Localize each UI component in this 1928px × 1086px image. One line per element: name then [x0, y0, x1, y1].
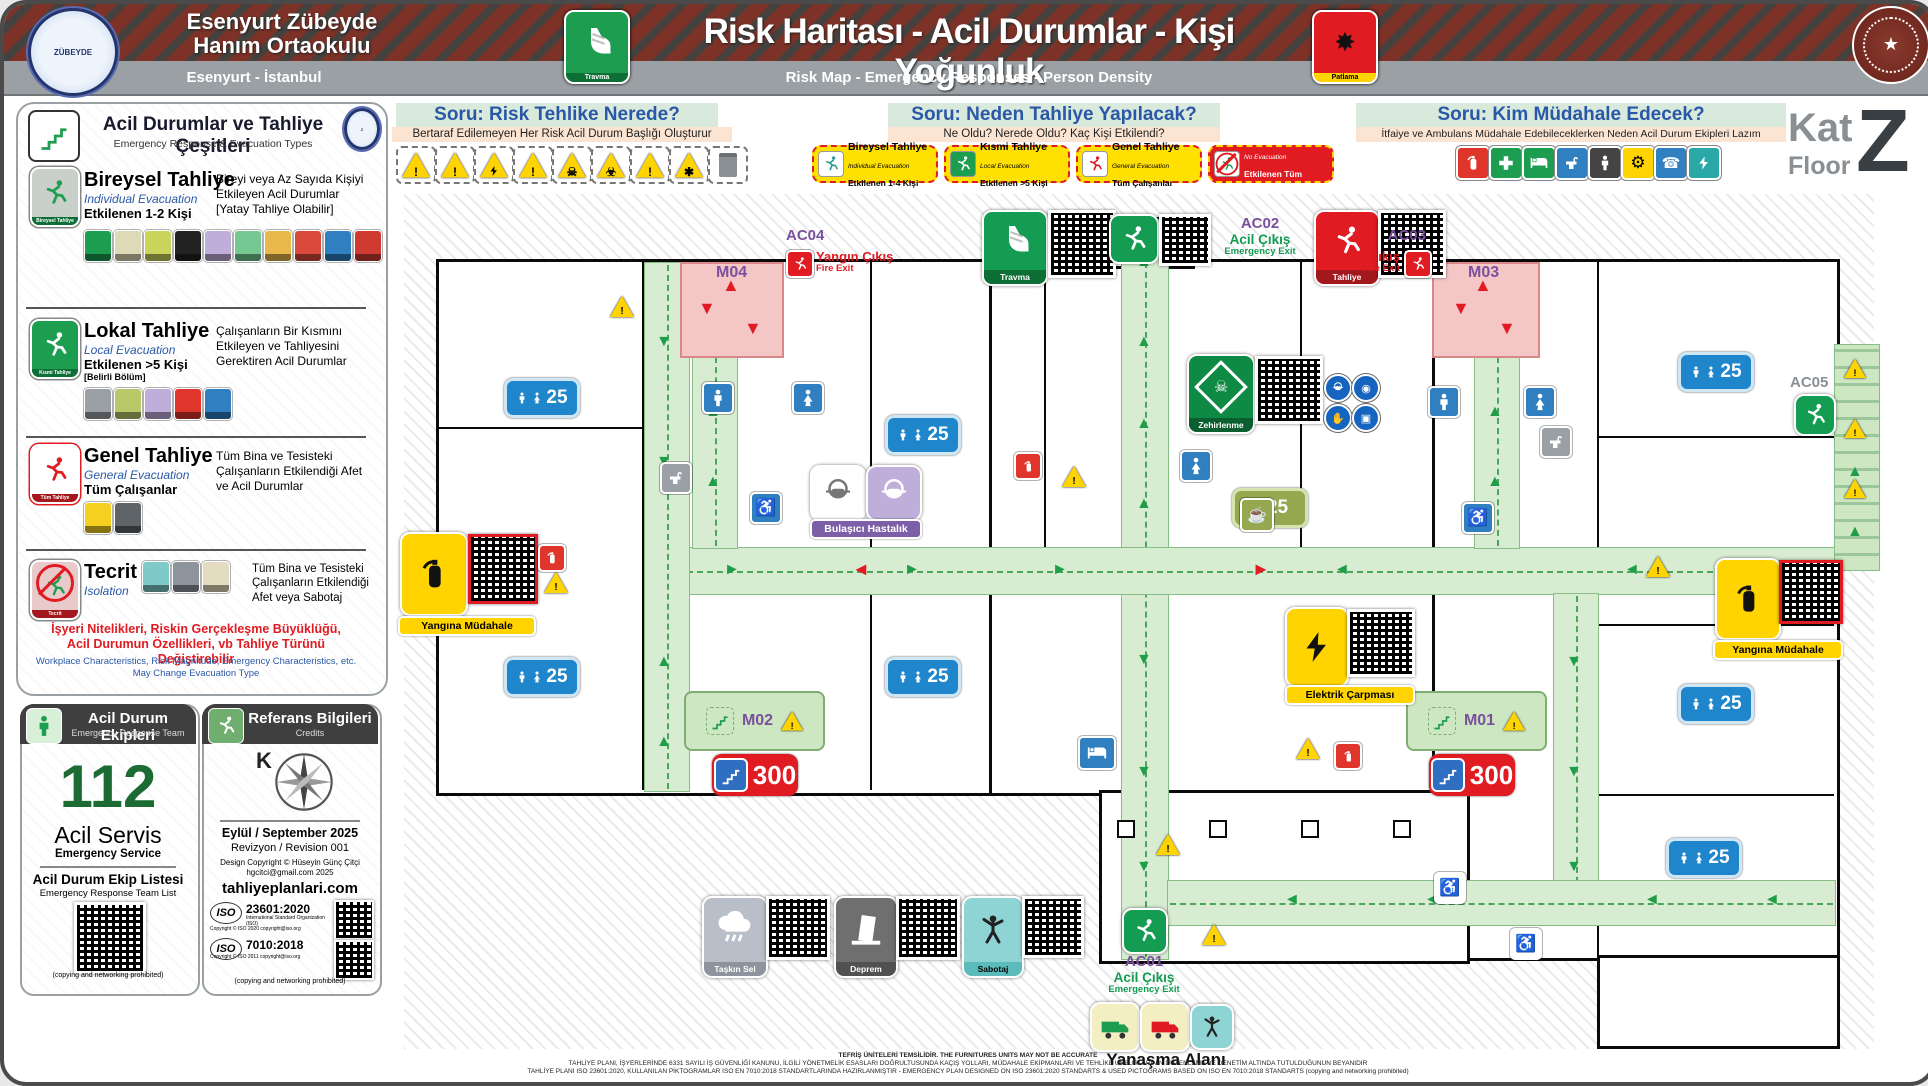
infectious-disease-caption: Bulaşıcı Hastalık [810, 519, 922, 539]
fire-brigade-icon [1456, 146, 1490, 180]
evac-arrow: ◄ [1644, 892, 1660, 908]
stair-label-m01: M01 [1464, 712, 1495, 730]
corridor-right-vertical [1553, 593, 1599, 926]
interior-wall [1044, 262, 1046, 547]
earthquake-qr-code [896, 896, 960, 960]
trauma-qr-code [1048, 210, 1116, 278]
trauma-header-icon: Travma [564, 10, 630, 84]
fire-response-caption: Yangına Müdahale [398, 616, 536, 636]
density-value: 25 [1720, 361, 1741, 383]
fire-arrow: ▼ [1452, 299, 1470, 317]
badge-sub: Local Evacuation [980, 163, 1030, 170]
fire-extinguisher-icon [402, 534, 466, 614]
wheelchair-icon: ♿ [750, 492, 782, 524]
flood-cloud-icon [704, 898, 766, 962]
note-en-line1: Workplace Characteristics, Risk Magnitud… [28, 656, 364, 668]
risk-map-sheet: Esenyurt Zübeyde Hanım Ortaokulu Esenyur… [0, 0, 1928, 1086]
stairs-capacity-icon [714, 758, 748, 792]
interior-wall [436, 427, 644, 429]
evac-arrow: ► [904, 562, 920, 578]
note-en-line2: May Change Evacuation Type [28, 668, 364, 680]
credits-subtitle: Credits [244, 728, 376, 738]
fire-arrow: ▼ [698, 299, 716, 317]
exit-name-tr: Yangın Çıkış [816, 250, 906, 264]
badge-title: Kısmi Tahliye [980, 141, 1047, 153]
biohazard-icon: ☣ [591, 146, 631, 184]
electric-shock-caption: Elektrik Çarpması [1285, 685, 1415, 705]
bandaged-foot-icon [984, 212, 1046, 270]
section4-desc: Tüm Bina ve Tesisteki Çalışanların Etkil… [252, 562, 374, 605]
page-subtitle: Risk Map - Emergency Responses - Person … [639, 69, 1299, 86]
badge-kismi-tahliye: Kısmi Tahliye Local Evacuation Etkilenen… [944, 145, 1070, 183]
density-badge: 25 [885, 415, 961, 455]
team-copy-note: (copying and networking prohibited) [20, 972, 196, 979]
section-divider [26, 307, 366, 309]
stair-warning-icon: ! [1503, 712, 1525, 731]
density-value: 25 [927, 424, 948, 446]
poisoning-sign: ☠ Zehirlenme [1187, 354, 1255, 434]
individual-evacuation-sign: Bireysel Tahliye [30, 167, 80, 227]
evac-arrow: ▲ [656, 734, 672, 750]
credits-design: Design Copyright © Hüseyin Günç Çitçi [202, 858, 378, 867]
general-evac-icon [1082, 151, 1108, 177]
fire-arrow: ▲ [722, 276, 740, 294]
note-tr-line1: İşyeri Nitelikleri, Riskin Gerçekleşme B… [28, 622, 364, 637]
evac-arrow: ▲ [1487, 474, 1503, 490]
school-name: Esenyurt Zübeyde Hanım Ortaokulu [122, 10, 442, 58]
coffee-break-icon: ☕ [1240, 498, 1274, 532]
iso2-copyright: Copyright © ISO 2011 copyright@iso.org [210, 954, 330, 960]
sidebar-school-logo: Z [344, 108, 380, 150]
travma-icon [84, 230, 112, 262]
slip-hazard-icon: ! [435, 146, 475, 184]
hayvan-isirigi-icon [114, 230, 142, 262]
infectious-disease-icon-1 [810, 465, 866, 521]
credits-copy-note: (copying and networking prohibited) [202, 978, 378, 985]
evacuation-plan-icon [28, 110, 80, 162]
density-value: 25 [1720, 693, 1741, 715]
ambulance-icon [1090, 1002, 1140, 1052]
alarm-gear-icon: ⚙ [1621, 146, 1655, 180]
sidebar-title: Acil Durumlar ve Tahliye Çeşitleri [84, 114, 342, 158]
wc-women-icon [792, 382, 824, 414]
section2-icon-strip [84, 388, 232, 420]
density-badge: 25 [885, 657, 961, 697]
running-man-icon [1796, 396, 1834, 434]
asansor-icon [204, 388, 232, 420]
evac-arrow: ◄ [1764, 892, 1780, 908]
warning-triangle-icon: ! [1844, 419, 1866, 438]
credits-date: Eylül / September 2025 [202, 826, 378, 840]
stairwell-m02: M02 ! [684, 691, 825, 751]
section3-desc: Tüm Bina ve Tesisteki Çalışanların Etkil… [216, 449, 374, 494]
badge-bireysel-tahliye: Bireysel Tahliye Individual Evacuation E… [812, 145, 938, 183]
stairs-down-icon [706, 707, 734, 735]
wheelchair-icon: ♿ [1434, 872, 1466, 904]
school-location: Esenyurt - İstanbul [104, 69, 404, 86]
exit-name-en: Emergency Exit [1208, 247, 1312, 257]
badge-sub: Individual Evacuation [848, 163, 909, 170]
building-center-wing [989, 259, 1435, 796]
interior-wall [870, 593, 872, 790]
ppe-mask-icon [1324, 374, 1352, 402]
iso1-number: 23601:2020 [246, 902, 310, 916]
badge-scope: Etkilenen Tüm Kişiler [1244, 169, 1302, 197]
poisoning-qr-code [1255, 356, 1323, 424]
bina-cokmesi-icon [114, 502, 142, 534]
ppe-apron-icon: ▣ [1352, 404, 1380, 432]
fire-exit-icon [786, 250, 814, 278]
emergency-service-en: Emergency Service [20, 848, 196, 860]
evac-arrow: ◄ [1284, 892, 1300, 908]
warning-triangle-icon: ! [1844, 359, 1866, 378]
iso1-qr-code [334, 900, 374, 940]
badge-genel-tahliye: Genel Tahliye General Evacuation Tüm Çal… [1076, 145, 1202, 183]
evac-arrow: ▲ [1847, 524, 1863, 540]
wheelchair-icon: ♿ [1462, 502, 1494, 534]
fire-exit-icon [1404, 250, 1432, 278]
question3-subtitle: İtfaiye ve Ambulans Müdahale Edebilecekl… [1356, 127, 1786, 142]
local-evacuation-sign: Kısmi Tahliye [30, 319, 80, 379]
chemical-hazard-icon: ✱ [669, 146, 709, 184]
trauma-caption: Travma [984, 270, 1046, 284]
evac-arrow: ▼ [1566, 859, 1582, 875]
evac-arrow: ◄ [1334, 562, 1350, 578]
fire-extinguisher-icon [1717, 560, 1779, 638]
footer-line1: TEFRİŞ ÜNİTELERİ TEMSİLİDİR. THE FURNITU… [268, 1052, 1668, 1059]
section3-scope: Tüm Çalışanlar [84, 482, 177, 497]
fire-arrow: ► [1252, 560, 1270, 578]
general-hazard-icon: ! [396, 146, 436, 184]
siddet-icon [142, 561, 170, 593]
section2-sub: Local Evacuation [84, 343, 175, 357]
sabotage-sign: Sabotaj [962, 896, 1024, 978]
emergency-number: 112 [20, 752, 196, 821]
fire-arrow: ◄ [852, 560, 870, 578]
evac-arrow: ▲ [1136, 416, 1152, 432]
exit-label-ac02: AC02 Acil Çıkış Emergency Exit [1208, 216, 1312, 258]
sabotage-qr-code [1022, 896, 1084, 958]
general-evacuation-sign: Tüm Tahliye [30, 444, 80, 504]
fire-response-sign [1715, 558, 1781, 640]
zehirlenme-icon [144, 230, 172, 262]
floor-label-floor: Floor [1788, 152, 1851, 181]
section1-desc: Bireyi veya Az Sayıda Kişiyi Etkileyen A… [216, 172, 374, 217]
capacity-value: 300 [753, 760, 796, 791]
exit-sign-ac01 [1122, 908, 1168, 954]
exit-id: AC02 [1208, 216, 1312, 233]
fire-truck-icon [1140, 1002, 1190, 1052]
school-name-line1: Esenyurt Zübeyde [122, 10, 442, 34]
section4-title: Tecrit [84, 561, 137, 584]
sign-caption: Kısmi Tahliye [32, 369, 78, 377]
fire-response-qr-code [1779, 560, 1843, 624]
credits-email: hgcitci@gmail.com 2025 [202, 868, 378, 877]
sel-baskini-icon [84, 388, 112, 420]
extinguisher-point-icon [1334, 742, 1362, 770]
exit-name-en: Fire Exit [1312, 264, 1400, 274]
iso-logo: ISO [210, 902, 242, 924]
compass-rose [272, 750, 336, 814]
team-list-en: Emergency Response Team List [20, 888, 196, 899]
bandaged-foot-icon [566, 12, 628, 73]
isolation-sign: Tecrit [30, 560, 80, 620]
warning-triangle-icon: ! [1296, 738, 1320, 759]
infectious-disease-icon-2 [866, 465, 922, 521]
evac-arrow: ▼ [1136, 764, 1152, 780]
explosion-icon: ✸ [1314, 12, 1376, 73]
exit-sign-ac05 [1794, 394, 1836, 436]
density-value: 25 [546, 387, 567, 409]
building-bottom-right-annex [1597, 955, 1840, 1049]
kanama-icon [264, 230, 292, 262]
stairwell-m01: M01 ! [1406, 691, 1547, 751]
question1-title: Soru: Risk Tehlike Nerede? [396, 103, 718, 127]
evac-arrow: ► [724, 562, 740, 578]
corridor-bottom-horizontal [1167, 880, 1836, 926]
ppe-gloves-icon: ✋ [1324, 404, 1352, 432]
door-marker [1209, 820, 1227, 838]
exit-name-tr: Yangın Çıkış [1312, 250, 1400, 264]
divider [40, 866, 176, 868]
section2-scope2: [Belirli Bölüm] [84, 372, 146, 382]
yangin-mudahale-icon [84, 502, 112, 534]
density-value: 25 [1708, 847, 1729, 869]
evac-arrow: ▲ [656, 654, 672, 670]
exit-label-ac03: AC03 [1326, 228, 1426, 245]
badge-title: Tecrit [1244, 132, 1272, 144]
evac-arrow: ▲ [705, 474, 721, 490]
sabotage-figure-icon [964, 898, 1022, 962]
ministry-logo-emblem: ★ [1863, 17, 1919, 73]
exit-id: AC01 [1084, 954, 1204, 971]
fire-arrow: ▲ [1474, 276, 1492, 294]
yangin-mudahale-icon [174, 388, 202, 420]
evac-arrow: ▼ [1566, 654, 1582, 670]
iso2-qr-code [334, 940, 374, 980]
density-badge: 25 [1678, 684, 1754, 724]
warning-triangle-icon: ! [544, 572, 568, 593]
evacuation-note-en: Workplace Characteristics, Risk Magnitud… [28, 656, 364, 680]
wc-men-icon [702, 382, 734, 414]
warning-triangle-icon: ! [1844, 479, 1866, 498]
stair-warning-icon: ! [781, 712, 803, 731]
explosion-header-icon: ✸ Patlama [1312, 10, 1378, 84]
question2-title: Soru: Neden Tahliye Yapılacak? [888, 103, 1220, 127]
aed-icon [1687, 146, 1721, 180]
fall-hazard-icon: ! [513, 146, 553, 184]
exit-name-tr: Acil Çıkış [1208, 233, 1312, 248]
team-panel-title: Acil Durum Ekipleri [62, 710, 194, 744]
section1-icon-strip [84, 230, 382, 262]
wc-women-icon [1524, 386, 1556, 418]
extinguisher-point-icon [1014, 452, 1042, 480]
sign-caption: Bireysel Tahliye [32, 217, 78, 225]
warning-triangle-icon: ! [1202, 924, 1226, 945]
sabotaj-icon [202, 561, 230, 593]
emergency-phone-icon: ☎ [1654, 146, 1688, 180]
exit-name-en: Emergency Exit [1084, 985, 1204, 995]
exit-sign-ac02 [1109, 214, 1159, 264]
ministry-logo: ★ [1852, 6, 1928, 84]
section3-title: Genel Tahliye [84, 445, 213, 468]
emergency-service-tr: Acil Servis [20, 822, 196, 849]
section2-desc: Çalışanların Bir Kısmını Etkileyen ve Ta… [216, 324, 374, 369]
extinguisher-point-icon [538, 544, 566, 572]
sink-icon [1540, 426, 1572, 458]
trauma-caption: Travma [566, 73, 628, 82]
poisoning-caption: Zehirlenme [1189, 418, 1253, 432]
density-badge: 25 [504, 657, 580, 697]
section4-icon-strip [142, 561, 230, 593]
density-value: 25 [546, 666, 567, 688]
section1-scope: Etkilenen 1-2 Kişi [84, 206, 192, 221]
safety-shower-icon [1555, 146, 1589, 180]
ilk-yardim-icon [294, 230, 322, 262]
earthquake-sign: Deprem [834, 896, 898, 978]
wheelchair-icon: ♿ [1510, 928, 1542, 960]
section4-sub: Isolation [84, 584, 129, 598]
evac-arrow: ► [1052, 562, 1068, 578]
stair-capacity-badge: 300 [1429, 754, 1515, 796]
floor-label-kat: Kat [1788, 106, 1852, 151]
footer-line2: TAHLİYE PLANI, İŞYERLERİNDE 6331 SAYILI … [268, 1060, 1668, 1067]
density-badge: 25 [1678, 352, 1754, 392]
section2-title: Lokal Tahliye [84, 320, 209, 343]
capacity-value: 300 [1470, 760, 1513, 791]
gida-zehirlenmesi-icon [114, 388, 142, 420]
fire-arrow: ▼ [744, 319, 762, 337]
yanik-icon [234, 230, 262, 262]
credits-title: Referans Bilgileri [244, 710, 376, 727]
section1-sub: Individual Evacuation [84, 192, 197, 206]
sidebar-subtitle: Emergency Response & Evacuation Types [84, 138, 342, 150]
sign-caption: Tecrit [32, 610, 78, 618]
evac-arrow: ▲ [1847, 464, 1863, 480]
trauma-sign: Travma [982, 210, 1048, 286]
section-divider [26, 549, 366, 551]
electric-shock-qr-code [1347, 609, 1415, 677]
door-marker [1117, 820, 1135, 838]
no-evacuation-icon [1214, 151, 1240, 177]
yangin-icon [354, 230, 382, 262]
exit-id: AC03 [1326, 228, 1426, 245]
wc-women-icon [1180, 450, 1212, 482]
iso2-number: 7010:2018 [246, 938, 303, 952]
assembly-point-icon [1588, 146, 1622, 180]
flood-qr-code [766, 896, 830, 960]
interior-wall [1599, 794, 1834, 796]
running-man-icon [1111, 216, 1157, 262]
poison-hazard-icon: ☠ [552, 146, 592, 184]
badge-title: Genel Tahliye [1112, 141, 1180, 153]
footer-line3: TAHLİYE PLANI ISO 23601:2020, KULLANILAN… [268, 1068, 1668, 1075]
badge-scope: Tüm Çalışanlar [1112, 178, 1173, 188]
bogulma-icon [174, 230, 202, 262]
electric-hazard-icon [474, 146, 514, 184]
exit-name-en: Fire Exit [816, 264, 906, 274]
door-marker [1393, 820, 1411, 838]
density-badge: 25 [1666, 838, 1742, 878]
door-marker [1301, 820, 1319, 838]
question3-title: Soru: Kim Müdahale Edecek? [1356, 103, 1786, 127]
sabotage-caption: Sabotaj [964, 962, 1022, 976]
section3-sub: General Evacuation [84, 468, 189, 482]
section2-scope: Etkilenen >5 Kişi [84, 357, 188, 372]
badge-scope: Etkilenen >5 Kişi [980, 178, 1048, 188]
exit-label-ac04-text: Yangın Çıkış Fire Exit [816, 250, 906, 275]
fire-response-qr-code [468, 534, 538, 604]
exit-name-tr: Acil Çıkış [1084, 971, 1204, 986]
ppe-goggles-icon: ◉ [1352, 374, 1380, 402]
sign-caption: Tüm Tahliye [32, 494, 78, 502]
warning-triangle-icon: ! [1646, 556, 1670, 577]
individual-evac-icon [818, 151, 844, 177]
badge-scope: Etkilenen 1-4 Kişi [848, 178, 918, 188]
school-logo: ZÜBEYDE [28, 8, 118, 96]
stair-capacity-badge: 300 [712, 754, 798, 796]
exit-id: AC04 [786, 228, 896, 245]
team-list-tr: Acil Durum Ekip Listesi [20, 872, 196, 887]
stairs-capacity-icon [1431, 758, 1465, 792]
bulasici-hastalik-icon [144, 388, 172, 420]
density-badge: 25 [504, 378, 580, 418]
evac-arrow: ▼ [1566, 764, 1582, 780]
flood-caption: Taşkın Sel [704, 962, 766, 976]
local-evac-icon [950, 151, 976, 177]
lightning-icon [1287, 609, 1347, 685]
bulasici-hastalik-icon [204, 230, 232, 262]
evac-arrow: ▼ [1136, 859, 1152, 875]
floor-letter: Z [1856, 90, 1910, 192]
warning-triangle-icon: ! [610, 296, 634, 317]
running-man-icon [1124, 910, 1166, 952]
exit-label-ac05: AC05 [1790, 374, 1828, 391]
evac-arrow: ▲ [1136, 334, 1152, 350]
credits-revision: Revizyon / Revision 001 [202, 842, 378, 854]
badge-sub: General Evacuation [1112, 163, 1169, 170]
team-panel-subtitle: Emergency Response Team [62, 728, 194, 738]
stretcher-icon [1522, 146, 1556, 180]
section3-icon-strip [84, 502, 142, 534]
sink-icon [660, 462, 692, 494]
badge-title: Bireysel Tahliye [848, 141, 927, 153]
team-person-icon [26, 708, 62, 744]
stairs-down-icon [1428, 707, 1456, 735]
wc-men-icon [1428, 386, 1460, 418]
waste-bin-icon [708, 146, 748, 184]
warning-triangle-icon: ! [1062, 466, 1086, 487]
school-logo-text: ZÜBEYDE [54, 48, 92, 57]
question1-subtitle: Bertaraf Edilemeyen Her Risk Acil Durum … [392, 127, 732, 142]
exit-label-ac04: AC04 [786, 228, 896, 245]
evac-arrow: ▼ [1136, 652, 1152, 668]
earthquake-caption: Deprem [836, 962, 896, 976]
exit-door-icon [208, 708, 244, 744]
electric-shock-sign [1285, 607, 1349, 687]
school-name-line2: Hanım Ortaokulu [122, 34, 442, 58]
badge-sub: No Evacuation [1244, 154, 1286, 161]
evac-arrow: ◄ [1624, 562, 1640, 578]
divider [220, 820, 360, 822]
density-value: 25 [927, 666, 948, 688]
north-label: K [256, 748, 272, 774]
ac02-qr-code [1159, 214, 1211, 266]
first-aid-icon [1489, 146, 1523, 180]
asansor-icon [324, 230, 352, 262]
section-divider [26, 436, 366, 438]
flood-sign: Taşkın Sel [702, 896, 768, 978]
